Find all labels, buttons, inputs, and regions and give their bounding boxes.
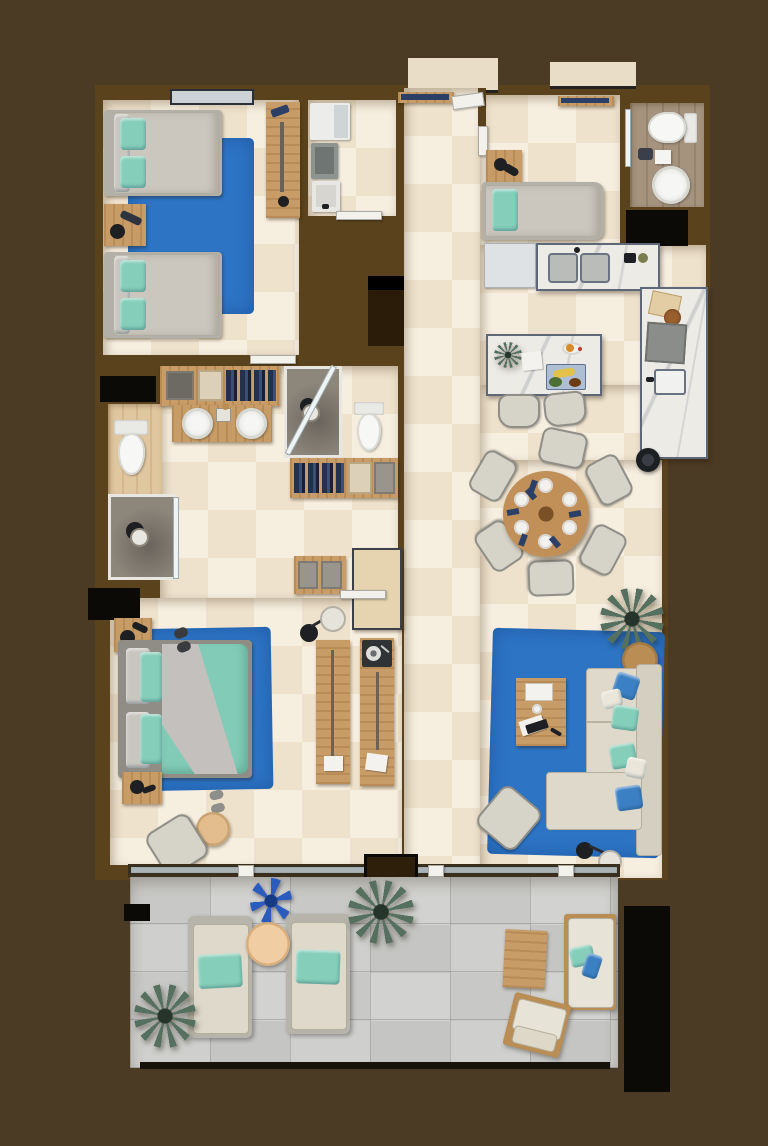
window-void-left bbox=[88, 588, 140, 620]
closet-strip-1 bbox=[160, 366, 280, 406]
closet1-mat bbox=[166, 371, 194, 400]
coffee-table bbox=[516, 678, 566, 746]
twin-desk-item bbox=[270, 104, 290, 118]
prep-sink bbox=[654, 369, 686, 395]
tray-veg bbox=[569, 378, 581, 387]
kitchen-sink-basin-1 bbox=[548, 253, 578, 283]
fridge bbox=[484, 243, 536, 288]
entry-console bbox=[398, 92, 454, 103]
vanity-sink-1 bbox=[182, 408, 213, 439]
closet1-hanging-clothes bbox=[226, 370, 276, 401]
cooktop bbox=[645, 322, 688, 365]
sofa-pillow-blue-2 bbox=[614, 784, 643, 811]
master-pillow-teal-1 bbox=[140, 652, 162, 702]
desk-console-2-spine bbox=[376, 672, 379, 750]
dining-chair-4 bbox=[527, 559, 574, 597]
master-duvet bbox=[162, 644, 248, 774]
coffee-table-remote bbox=[550, 727, 562, 736]
twin-desk-object bbox=[278, 196, 289, 207]
vanity-soap bbox=[222, 403, 229, 410]
twin-bed-2 bbox=[104, 252, 222, 338]
counter-items bbox=[624, 253, 636, 263]
twin-bedroom-door bbox=[250, 355, 296, 364]
desk-console-1-paper bbox=[324, 756, 343, 771]
sun-lounger-2 bbox=[286, 914, 350, 1034]
twin-bed-1 bbox=[104, 110, 222, 196]
twin-desk bbox=[266, 102, 300, 218]
sofa-pillow-teal-1 bbox=[610, 704, 639, 731]
terrace-planter-right bbox=[624, 906, 670, 1092]
hall-dresser-panel-1 bbox=[298, 561, 318, 589]
kitchen-counter-right bbox=[640, 287, 708, 459]
hall-bench bbox=[352, 548, 402, 630]
slider-frame-1 bbox=[238, 865, 254, 877]
outdoor-table bbox=[503, 929, 548, 989]
slider-frame-3 bbox=[558, 865, 574, 877]
vanity-sink-2 bbox=[236, 408, 267, 439]
entry-console-items bbox=[401, 94, 449, 100]
kitchen-sink-basin-2 bbox=[580, 253, 610, 283]
utility-appliance-handle bbox=[322, 204, 329, 209]
master-throw-blanket bbox=[162, 644, 248, 774]
bathroom2-glass-door bbox=[626, 110, 630, 166]
island-centerpiece bbox=[494, 342, 522, 368]
record-player-disc bbox=[366, 646, 381, 661]
twin-bed-1-pillow bbox=[120, 118, 146, 150]
twin-desk-runner bbox=[280, 122, 284, 192]
master-nightstand-1-item bbox=[131, 621, 148, 634]
kitchen-faucet bbox=[574, 247, 580, 253]
living-palm bbox=[600, 588, 664, 650]
kitchen-island bbox=[486, 334, 602, 396]
exterior-notch bbox=[668, 458, 768, 880]
bathroom2-shelf bbox=[655, 150, 671, 164]
twin-bed-2-pillow-2 bbox=[120, 298, 146, 330]
counter-herb bbox=[638, 253, 648, 263]
record-player bbox=[362, 640, 392, 667]
floor-plan-scene bbox=[0, 0, 768, 1146]
bathroom2-mat bbox=[638, 148, 653, 160]
record-player-arm bbox=[381, 645, 390, 653]
island-chair-1 bbox=[498, 394, 540, 428]
island-chair-2 bbox=[542, 390, 587, 428]
washer bbox=[310, 103, 350, 140]
desk-console-1-spine bbox=[331, 650, 334, 760]
bathroom-complex-door bbox=[340, 590, 386, 599]
outdoor-sofa bbox=[564, 914, 616, 1010]
coffee-table-tray bbox=[526, 684, 552, 700]
closet2-hanging-clothes bbox=[294, 463, 344, 493]
twin-nightstand bbox=[104, 204, 146, 246]
washer-lid bbox=[334, 105, 348, 138]
single-bed-pillow bbox=[492, 189, 518, 231]
terrace-palm-1 bbox=[348, 880, 414, 944]
closet-strip-2 bbox=[290, 458, 398, 498]
desk-console-2-paper bbox=[365, 753, 388, 773]
dining-plate-1 bbox=[538, 478, 553, 493]
twin-bedroom-window bbox=[170, 89, 254, 105]
tray-greens bbox=[549, 377, 562, 387]
hall-dresser bbox=[294, 556, 346, 594]
void-top-right bbox=[626, 210, 688, 246]
master-floor-lamp-shade bbox=[320, 606, 346, 632]
master-pillow-teal-2 bbox=[140, 714, 162, 764]
single-bed bbox=[482, 182, 604, 240]
utility-appliance bbox=[312, 181, 340, 212]
master-bed bbox=[118, 640, 252, 778]
single-nightstand-item bbox=[502, 163, 520, 178]
island-tray bbox=[546, 364, 586, 390]
island-papers bbox=[521, 351, 543, 371]
desk-console-2 bbox=[360, 638, 394, 786]
hall-console-2-items bbox=[561, 98, 609, 103]
closet1-drawers bbox=[198, 370, 223, 401]
hall-dresser-panel-2 bbox=[321, 561, 342, 589]
sun-lounger-1 bbox=[188, 916, 252, 1038]
utility-door bbox=[336, 211, 382, 220]
terrace-edge bbox=[140, 1062, 610, 1069]
shaft-closet bbox=[368, 276, 404, 346]
terrace-left-nub bbox=[124, 904, 150, 921]
terrace-palm-2 bbox=[134, 984, 196, 1048]
shower-2-glass bbox=[174, 498, 178, 578]
twin-bed-1-pillow-2 bbox=[120, 156, 146, 188]
dryer bbox=[311, 143, 338, 179]
shower-2 bbox=[108, 494, 176, 580]
desk-console-1 bbox=[316, 640, 350, 784]
bathroom2-sink bbox=[652, 166, 690, 204]
closet2-drawers bbox=[348, 462, 372, 494]
closet2-panel bbox=[374, 462, 395, 494]
hall-console-2 bbox=[558, 96, 614, 106]
sofa-pillow-white-2 bbox=[624, 756, 648, 780]
vanity bbox=[172, 405, 272, 442]
sun-lounger-1-pillow bbox=[197, 953, 243, 989]
twin-nightstand-item bbox=[119, 210, 142, 227]
vanity-accessories bbox=[217, 409, 230, 421]
shower-2-head bbox=[132, 530, 147, 545]
coffee-table-bowl bbox=[532, 704, 542, 714]
master-nightstand-2 bbox=[122, 772, 162, 804]
sun-lounger-2-pillow bbox=[295, 949, 340, 985]
dryer-door bbox=[315, 147, 334, 174]
dining-plate-2 bbox=[562, 492, 577, 507]
robot-vacuum bbox=[636, 448, 660, 472]
single-nightstand bbox=[486, 150, 522, 184]
exterior-ledge bbox=[550, 62, 636, 89]
terrace-round-table bbox=[246, 922, 290, 966]
twin-bed-2-pillow bbox=[120, 260, 146, 292]
island-fruit bbox=[566, 344, 574, 352]
dining-plate-3 bbox=[562, 520, 577, 535]
slider-frame-2 bbox=[428, 865, 444, 877]
window-void-bath bbox=[100, 376, 156, 402]
twin-nightstand-lamp bbox=[110, 224, 125, 239]
bathroom2-toilet-bowl bbox=[648, 112, 686, 143]
prep-sink-tap bbox=[646, 377, 654, 382]
kitchen-counter-top bbox=[536, 243, 660, 291]
